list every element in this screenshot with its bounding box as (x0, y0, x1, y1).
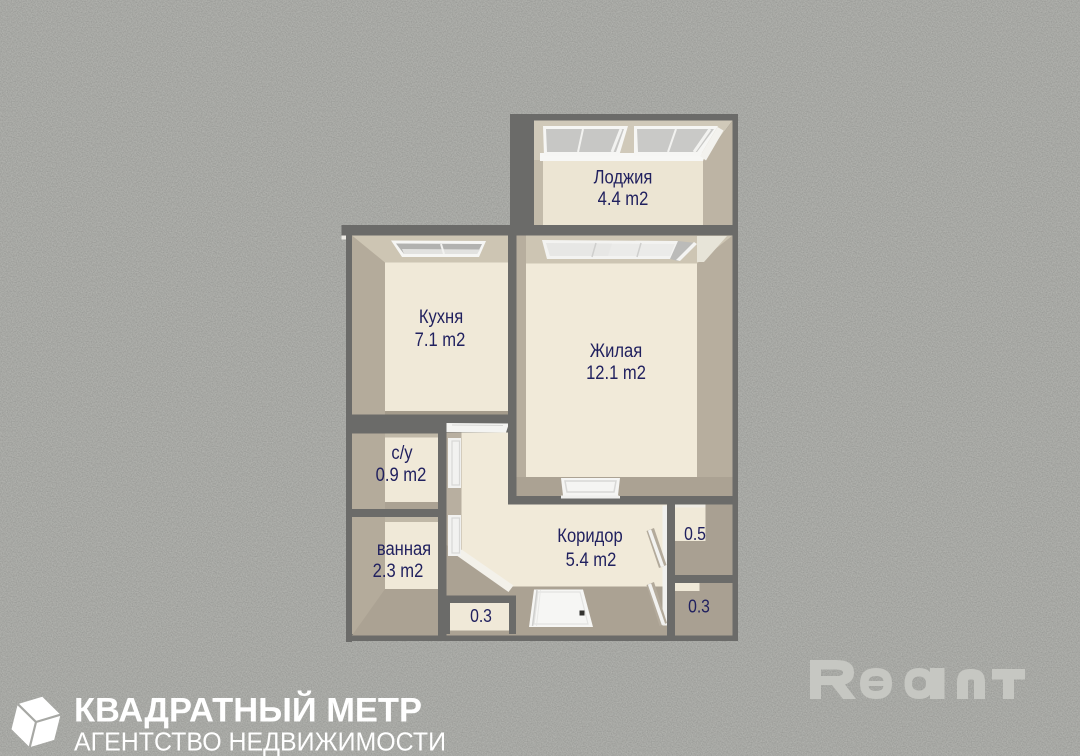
svg-text:0.3: 0.3 (470, 605, 492, 627)
svg-text:5.4 m2: 5.4 m2 (566, 549, 617, 571)
svg-text:с/у: с/у (391, 442, 412, 464)
svg-text:Коридор: Коридор (557, 525, 622, 547)
svg-text:КВАДРАТНЫЙ МЕТР: КВАДРАТНЫЙ МЕТР (74, 691, 422, 730)
svg-text:АГЕНТСТВО НЕДВИЖИМОСТИ: АГЕНТСТВО НЕДВИЖИМОСТИ (74, 727, 446, 756)
svg-text:7.1 m2: 7.1 m2 (415, 329, 466, 351)
svg-text:0.9 m2: 0.9 m2 (376, 464, 427, 486)
svg-text:Лоджия: Лоджия (594, 166, 653, 188)
svg-text:0.5: 0.5 (684, 523, 706, 545)
svg-text:4.4 m2: 4.4 m2 (598, 188, 649, 210)
svg-text:ванная: ванная (377, 538, 431, 560)
svg-text:Жилая: Жилая (590, 340, 642, 362)
svg-text:0.3: 0.3 (688, 595, 710, 617)
svg-text:12.1 m2: 12.1 m2 (586, 362, 646, 384)
svg-text:2.3 m2: 2.3 m2 (373, 560, 424, 582)
svg-text:Кухня: Кухня (419, 306, 463, 328)
